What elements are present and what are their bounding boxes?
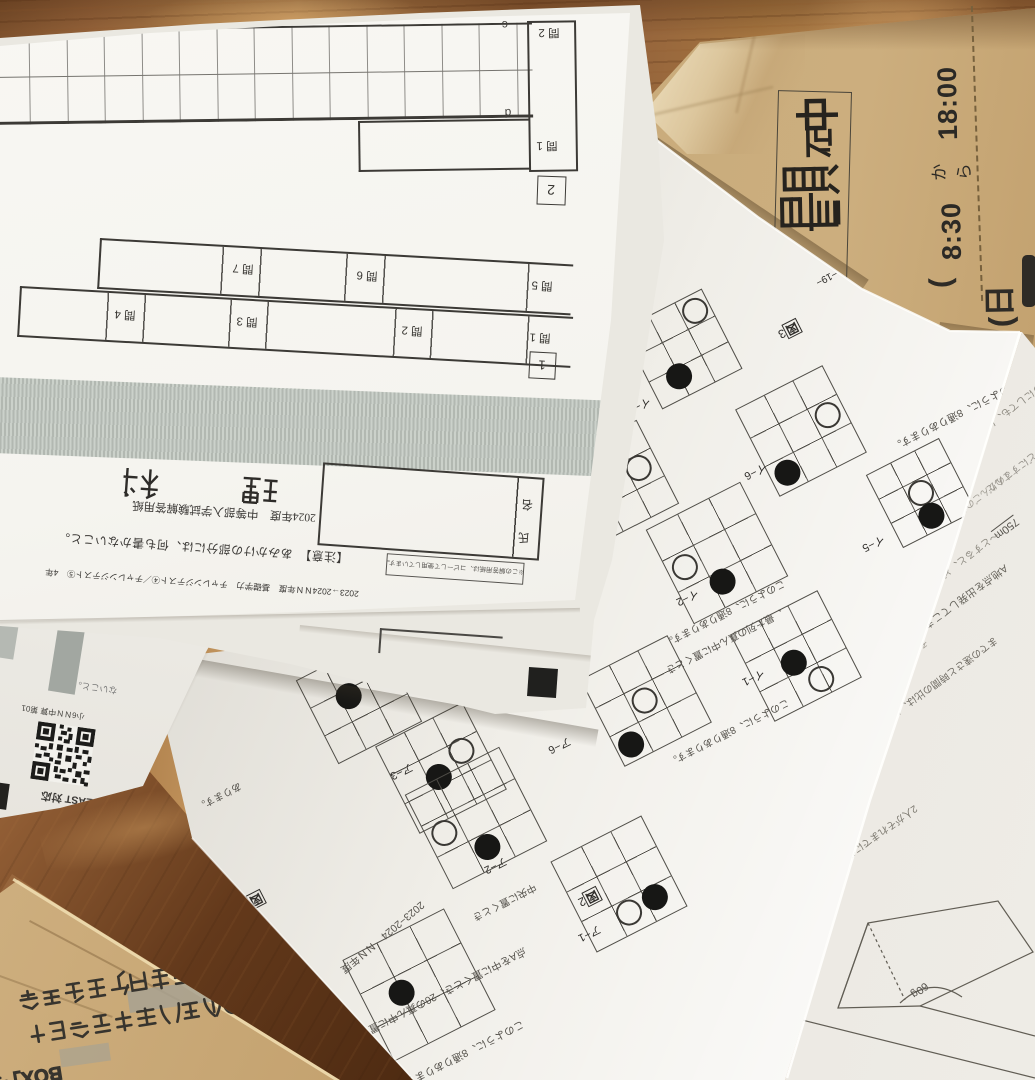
svg-text:BOX」: BOX」 (1, 1061, 64, 1080)
